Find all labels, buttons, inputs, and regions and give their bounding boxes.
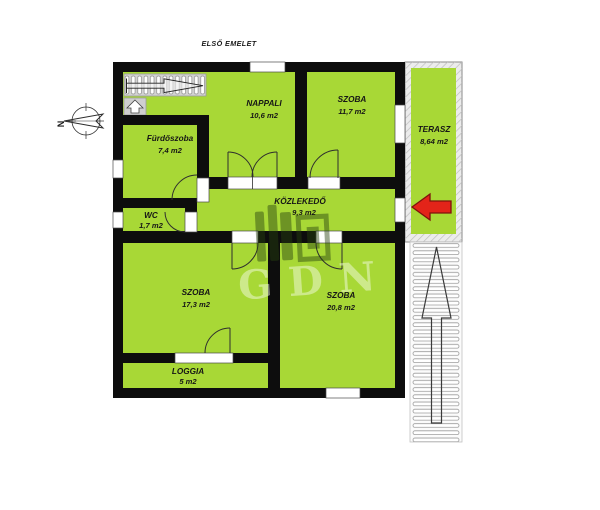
- window-top: [250, 62, 285, 72]
- entry-arrow-icon: [124, 98, 146, 115]
- floor-plan-canvas: ELSŐ EMELET N: [0, 0, 600, 510]
- window-right-szoba: [395, 105, 405, 143]
- room-area-kozlekedo: 9,3 m2: [292, 208, 316, 217]
- room-area-szoba-bal: 17,3 m2: [182, 300, 211, 309]
- stairs-top-left: [124, 74, 206, 96]
- window-bottom: [326, 388, 360, 398]
- room-name-kozlekedo: KÖZLEKEDŐ: [274, 195, 326, 206]
- stairs-right: [410, 242, 462, 442]
- floor-plan-page: ELSŐ EMELET N: [0, 0, 600, 510]
- room-name-szoba-also: SZOBA: [327, 291, 356, 300]
- compass-icon: [64, 103, 104, 139]
- room-area-loggia: 5 m2: [179, 377, 197, 386]
- room-area-furdoszoba: 7,4 m2: [158, 146, 182, 155]
- room-name-nappali: NAPPALI: [246, 99, 282, 108]
- room-name-szoba-felso: SZOBA: [338, 95, 367, 104]
- room-name-wc: WC: [144, 211, 159, 220]
- door-sill-szoba-bal: [232, 231, 258, 243]
- door-sill-wc: [185, 212, 197, 232]
- door-to-terrace: [395, 198, 405, 222]
- room-area-nappali: 10,6 m2: [250, 111, 279, 120]
- page-title: ELSŐ EMELET: [201, 39, 256, 48]
- window-left-bath: [113, 160, 123, 178]
- room-area-wc: 1,7 m2: [139, 221, 163, 230]
- room-name-szoba-bal: SZOBA: [182, 288, 211, 297]
- room-name-furdoszoba: Fürdőszoba: [147, 134, 194, 143]
- terrace-area: [405, 62, 462, 242]
- room-area-szoba-also: 20,8 m2: [326, 303, 356, 312]
- door-sill-loggia: [175, 353, 233, 363]
- room-area-szoba-felso: 11,7 m2: [338, 107, 366, 116]
- compass-north-label: N: [56, 121, 66, 128]
- door-sill-szoba-felso: [308, 177, 340, 189]
- door-sill-furdoszoba: [197, 178, 209, 202]
- room-area-terasz: 8,64 m2: [420, 137, 449, 146]
- room-name-terasz: TERASZ: [418, 125, 452, 134]
- room-name-loggia: LOGGIA: [172, 367, 204, 376]
- window-left-wc: [113, 212, 123, 228]
